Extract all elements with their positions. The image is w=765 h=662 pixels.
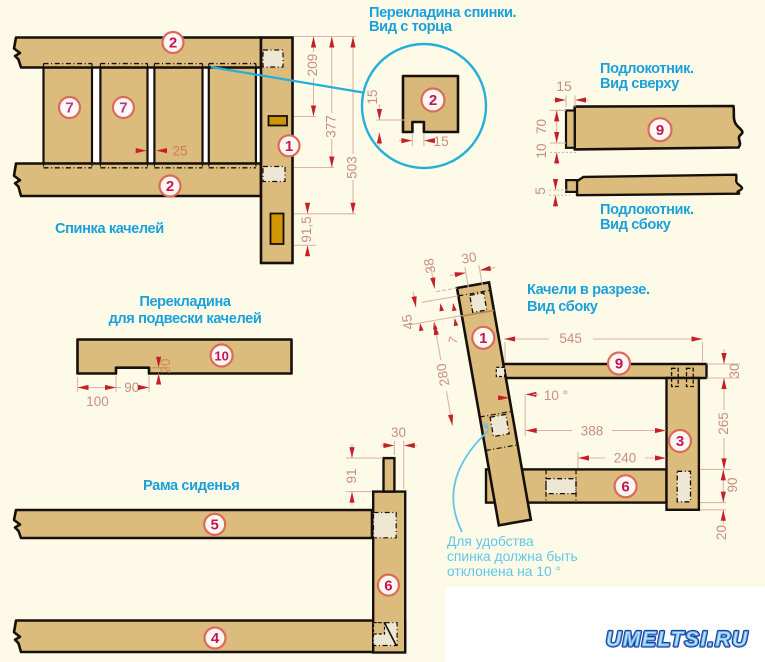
- svg-text:265: 265: [716, 412, 731, 435]
- svg-text:7: 7: [65, 100, 73, 117]
- svg-text:377: 377: [324, 115, 339, 138]
- svg-text:45: 45: [399, 313, 416, 330]
- svg-text:Рама сиденья: Рама сиденья: [143, 478, 239, 494]
- svg-text:90: 90: [725, 477, 740, 492]
- svg-text:10: 10: [534, 143, 549, 158]
- svg-text:4: 4: [211, 630, 220, 647]
- svg-text:91: 91: [344, 468, 359, 483]
- svg-text:UMELTSI.RU: UMELTSI.RU: [606, 628, 749, 651]
- svg-text:240: 240: [614, 451, 637, 466]
- svg-text:90: 90: [124, 380, 139, 395]
- svg-text:503: 503: [345, 156, 360, 179]
- svg-text:30: 30: [727, 363, 742, 378]
- svg-text:388: 388: [581, 424, 604, 439]
- svg-text:Вид сверху: Вид сверху: [600, 76, 680, 92]
- svg-text:Подлокотник.: Подлокотник.: [600, 202, 694, 218]
- svg-text:10: 10: [214, 349, 228, 364]
- svg-text:30: 30: [391, 425, 406, 440]
- svg-text:6: 6: [384, 577, 392, 594]
- svg-text:20: 20: [714, 525, 729, 540]
- svg-text:209: 209: [305, 54, 320, 77]
- svg-text:5: 5: [533, 187, 548, 195]
- svg-text:спинка должна быть: спинка должна быть: [447, 549, 578, 564]
- svg-text:Для удобства: Для удобства: [447, 534, 534, 549]
- svg-text:Подлокотник.: Подлокотник.: [600, 61, 694, 77]
- svg-text:7: 7: [119, 100, 127, 117]
- svg-text:2: 2: [169, 35, 177, 52]
- svg-text:91,5: 91,5: [299, 216, 314, 242]
- svg-text:10 °: 10 °: [544, 388, 568, 403]
- svg-text:3: 3: [676, 433, 684, 450]
- svg-text:38: 38: [421, 257, 438, 274]
- svg-text:545: 545: [559, 331, 582, 346]
- svg-text:Качели в разрезе.: Качели в разрезе.: [527, 282, 650, 298]
- svg-text:20: 20: [158, 358, 173, 373]
- svg-text:9: 9: [615, 356, 623, 373]
- svg-text:15: 15: [433, 133, 449, 149]
- svg-text:15: 15: [365, 89, 380, 104]
- svg-text:Спинка качелей: Спинка качелей: [55, 221, 164, 237]
- svg-text:15: 15: [556, 78, 572, 94]
- svg-text:2: 2: [429, 92, 437, 109]
- svg-text:100: 100: [86, 394, 109, 409]
- svg-text:2: 2: [166, 178, 174, 195]
- svg-text:5: 5: [211, 517, 219, 534]
- svg-text:отклонена на 10 °: отклонена на 10 °: [447, 564, 561, 579]
- svg-text:Вид сбоку: Вид сбоку: [600, 217, 672, 233]
- svg-text:Перекладина: Перекладина: [139, 294, 232, 310]
- svg-text:6: 6: [621, 479, 629, 496]
- svg-text:Вид сбоку: Вид сбоку: [527, 299, 599, 315]
- svg-text:Вид с торца: Вид с торца: [369, 19, 453, 35]
- svg-text:для подвески качелей: для подвески качелей: [109, 311, 262, 327]
- svg-text:1: 1: [285, 138, 293, 155]
- svg-text:30: 30: [460, 249, 477, 266]
- svg-text:25: 25: [172, 144, 187, 159]
- svg-text:70: 70: [534, 119, 549, 134]
- svg-text:1: 1: [479, 330, 487, 347]
- svg-text:9: 9: [656, 122, 664, 139]
